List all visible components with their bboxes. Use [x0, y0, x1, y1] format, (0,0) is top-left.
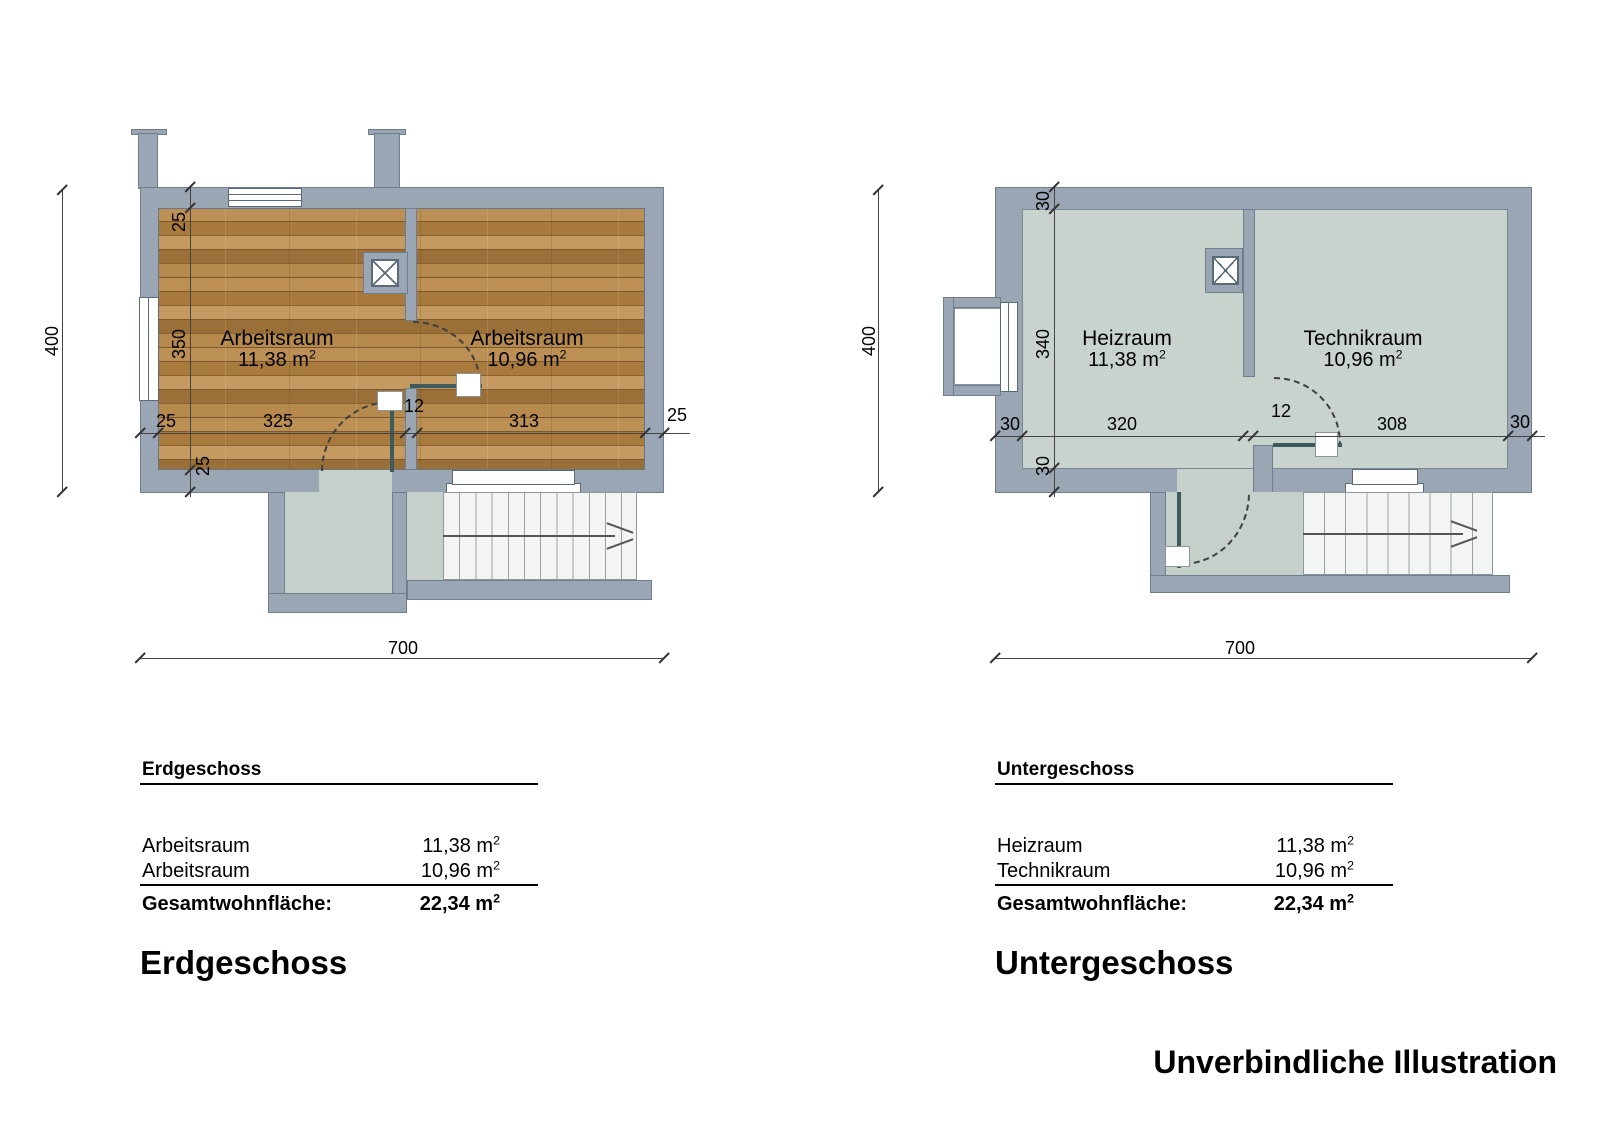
table-row-label: Arbeitsraum: [142, 861, 250, 881]
table-total-value: 22,34 m2: [372, 894, 500, 914]
doorway-opening: [319, 470, 392, 493]
dimension-label: 325: [256, 412, 300, 430]
dimension-line: [62, 190, 63, 492]
table-total-rule: [140, 884, 538, 886]
dimension-label: 25: [195, 446, 211, 486]
room-label: Technikraum: [1263, 328, 1463, 349]
dimension-line: [995, 436, 1545, 437]
partition-wall: [1243, 209, 1255, 377]
dimension-label: 700: [381, 639, 425, 657]
chimney-stub: [374, 133, 400, 189]
dimension-label: 308: [1370, 415, 1414, 433]
landing-wall: [1150, 575, 1510, 593]
dimension-label: 30: [992, 415, 1028, 433]
room-label: Arbeitsraum: [427, 328, 627, 349]
dimension-label: 700: [1218, 639, 1262, 657]
stair-landing: [407, 492, 443, 580]
stair-direction-line: [443, 535, 615, 537]
dimension-label: 400: [860, 318, 878, 364]
dimension-line: [1054, 187, 1055, 497]
dimension-label: 12: [1265, 402, 1297, 420]
stair-wall: [407, 580, 652, 600]
floor-title: Untergeschoss: [995, 946, 1233, 979]
dimension-line: [140, 658, 664, 659]
table-row-value: 11,38 m2: [1226, 836, 1354, 856]
dimension-label: 25: [171, 202, 187, 242]
window: [228, 188, 302, 207]
dimension-label: 25: [148, 412, 184, 430]
table-header: Erdgeschoss: [142, 760, 261, 779]
chimney-stub: [138, 133, 158, 189]
door-stop: [456, 373, 481, 397]
table-row-label: Technikraum: [997, 861, 1110, 881]
dimension-label: 30: [1035, 446, 1051, 486]
table-row-label: Arbeitsraum: [142, 836, 250, 856]
window: [1000, 302, 1018, 392]
door-stop: [1165, 546, 1190, 567]
vestibule-wall: [392, 492, 407, 594]
floor-plan-illustration: Arbeitsraum 11,38 m2 Arbeitsraum 10,96 m…: [0, 0, 1600, 1132]
table-row-value: 11,38 m2: [372, 836, 500, 856]
room-area: 10,96 m2: [1263, 350, 1463, 370]
table-header-rule: [140, 783, 538, 785]
chimney-x-icon: [1212, 256, 1239, 285]
table-header-rule: [995, 783, 1393, 785]
dimension-label: 12: [398, 397, 430, 415]
dimension-label: 25: [659, 406, 695, 424]
room-label: Arbeitsraum: [177, 328, 377, 349]
vestibule-floor: [285, 492, 397, 594]
chimney-x-icon: [371, 259, 399, 287]
dimension-label: 30: [1035, 181, 1051, 221]
table-total-label: Gesamtwohnfläche:: [142, 894, 332, 914]
dimension-label: 340: [1035, 324, 1051, 364]
dimension-label: 400: [43, 318, 61, 364]
table-row-label: Heizraum: [997, 836, 1083, 856]
dimension-label: 313: [502, 412, 546, 430]
floor-title: Erdgeschoss: [140, 946, 347, 979]
light-well-interior: [954, 308, 1001, 385]
light-well-wall: [943, 297, 954, 396]
dimension-label: 350: [171, 324, 187, 364]
dimension-line: [190, 187, 191, 497]
vestibule-wall: [268, 593, 407, 613]
dimension-label: 320: [1100, 415, 1144, 433]
room-area: 11,38 m2: [1027, 350, 1227, 370]
table-total-label: Gesamtwohnfläche:: [997, 894, 1187, 914]
room-label: Heizraum: [1027, 328, 1227, 349]
wall-step: [1253, 445, 1273, 493]
table-header: Untergeschoss: [997, 760, 1134, 779]
watermark: Unverbindliche Illustration: [1000, 1046, 1557, 1078]
doorway-opening: [1177, 469, 1253, 493]
table-total-value: 22,34 m2: [1226, 894, 1354, 914]
room-area: 10,96 m2: [427, 350, 627, 370]
table-row-value: 10,96 m2: [1226, 861, 1354, 881]
dimension-label: 30: [1502, 413, 1538, 431]
table-row-value: 10,96 m2: [372, 861, 500, 881]
window: [1352, 469, 1418, 485]
window: [139, 297, 159, 401]
stair-direction-line: [1303, 533, 1463, 535]
table-total-rule: [995, 884, 1393, 886]
window: [452, 470, 575, 485]
room-area: 11,38 m2: [177, 350, 377, 370]
dimension-line: [995, 658, 1532, 659]
